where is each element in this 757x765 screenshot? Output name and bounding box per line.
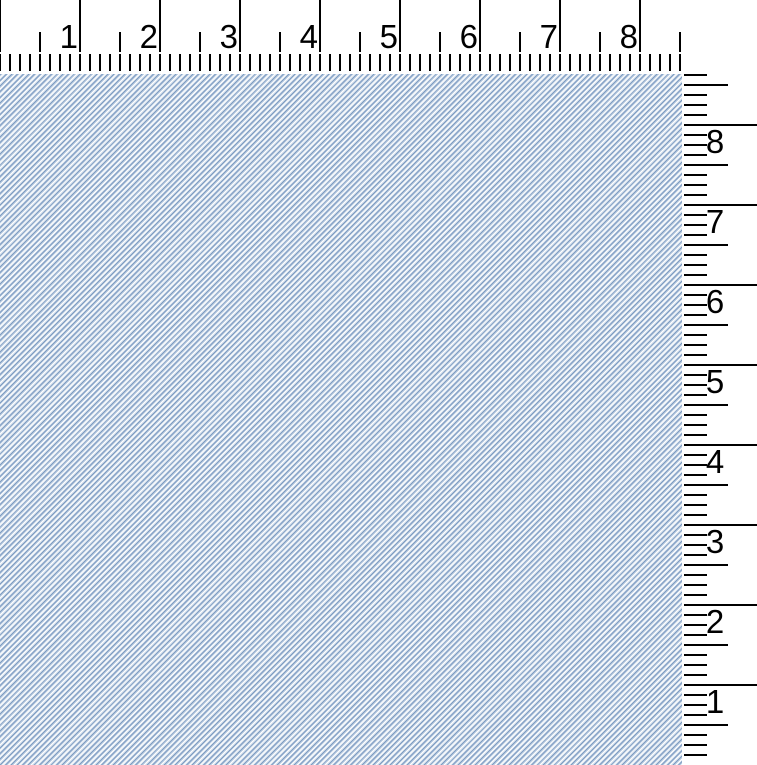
eighth-inch-tick (529, 54, 531, 71)
eighth-inch-tick (684, 94, 707, 96)
eighth-inch-tick (9, 54, 11, 71)
eighth-inch-tick (419, 54, 421, 71)
inch-tick-major (319, 0, 321, 52)
v-inch-label-4: 4 (698, 445, 732, 478)
eighth-inch-tick (684, 664, 707, 666)
half-inch-tick (684, 164, 728, 166)
ruler-measurement-screen: 12345678 87654321 (0, 0, 757, 765)
v-inch-label-8: 8 (698, 125, 732, 158)
eighth-inch-tick (599, 54, 601, 71)
eighth-inch-tick (469, 54, 471, 71)
v-inch-label-6: 6 (698, 285, 732, 318)
eighth-inch-tick (684, 344, 707, 346)
eighth-inch-tick (199, 54, 201, 71)
eighth-inch-tick (89, 54, 91, 71)
eighth-inch-tick (489, 54, 491, 71)
eighth-inch-tick (684, 184, 707, 186)
eighth-inch-tick (409, 54, 411, 71)
half-inch-tick (684, 84, 728, 86)
half-inch-tick (684, 564, 728, 566)
h-inch-label-5: 5 (355, 20, 398, 53)
eighth-inch-tick (684, 494, 707, 496)
eighth-inch-tick (684, 434, 707, 436)
eighth-inch-tick (684, 744, 707, 746)
inch-tick-major (639, 0, 641, 52)
eighth-inch-tick (439, 54, 441, 71)
eighth-inch-tick (639, 54, 641, 71)
eighth-inch-tick (684, 274, 707, 276)
eighth-inch-tick (684, 74, 707, 76)
eighth-inch-tick (684, 414, 707, 416)
inch-tick-major (479, 0, 481, 52)
h-inch-label-7: 7 (515, 20, 558, 53)
half-inch-tick (684, 644, 728, 646)
eighth-inch-tick (349, 54, 351, 71)
h-inch-label-2: 2 (115, 20, 158, 53)
eighth-inch-tick (0, 54, 1, 71)
eighth-inch-tick (684, 514, 707, 516)
eighth-inch-tick (684, 114, 707, 116)
inch-tick-major (239, 0, 241, 52)
eighth-inch-tick (299, 54, 301, 71)
eighth-inch-tick (519, 54, 521, 71)
eighth-inch-tick (449, 54, 451, 71)
eighth-inch-tick (359, 54, 361, 71)
eighth-inch-tick (684, 584, 707, 586)
v-inch-label-1: 1 (698, 685, 732, 718)
eighth-inch-tick (259, 54, 261, 71)
eighth-inch-tick (684, 594, 707, 596)
eighth-inch-tick (59, 54, 61, 71)
eighth-inch-tick (684, 654, 707, 656)
eighth-inch-tick (499, 54, 501, 71)
eighth-inch-tick (179, 54, 181, 71)
eighth-inch-tick (669, 54, 671, 71)
h-inch-label-4: 4 (275, 20, 318, 53)
eighth-inch-tick (684, 674, 707, 676)
eighth-inch-tick (229, 54, 231, 71)
eighth-inch-tick (579, 54, 581, 71)
eighth-inch-tick (209, 54, 211, 71)
eighth-inch-tick (619, 54, 621, 71)
eighth-inch-tick (429, 54, 431, 71)
eighth-inch-tick (684, 194, 707, 196)
eighth-inch-tick (279, 54, 281, 71)
half-inch-tick (684, 724, 728, 726)
v-inch-label-2: 2 (698, 605, 732, 638)
h-inch-label-1: 1 (35, 20, 78, 53)
eighth-inch-tick (539, 54, 541, 71)
eighth-inch-tick (684, 334, 707, 336)
eighth-inch-tick (149, 54, 151, 71)
h-inch-label-8: 8 (595, 20, 638, 53)
eighth-inch-tick (684, 754, 707, 756)
eighth-inch-tick (399, 54, 401, 71)
h-inch-label-3: 3 (195, 20, 238, 53)
inch-tick-major (159, 0, 161, 52)
eighth-inch-tick (39, 54, 41, 71)
eighth-inch-tick (109, 54, 111, 71)
eighth-inch-tick (189, 54, 191, 71)
eighth-inch-tick (319, 54, 321, 71)
eighth-inch-tick (649, 54, 651, 71)
eighth-inch-tick (609, 54, 611, 71)
inch-tick-major (559, 0, 561, 52)
eighth-inch-tick (379, 54, 381, 71)
half-inch-tick (679, 32, 681, 52)
eighth-inch-tick (569, 54, 571, 71)
eighth-inch-tick (684, 264, 707, 266)
eighth-inch-tick (684, 174, 707, 176)
eighth-inch-tick (679, 54, 681, 71)
half-inch-tick (684, 244, 728, 246)
eighth-inch-tick (684, 734, 707, 736)
eighth-inch-tick (19, 54, 21, 71)
v-inch-label-7: 7 (698, 205, 732, 238)
eighth-inch-tick (684, 424, 707, 426)
eighth-inch-tick (509, 54, 511, 71)
eighth-inch-tick (684, 504, 707, 506)
eighth-inch-tick (339, 54, 341, 71)
half-inch-tick (684, 324, 728, 326)
eighth-inch-tick (219, 54, 221, 71)
eighth-inch-tick (459, 54, 461, 71)
eighth-inch-tick (684, 574, 707, 576)
fabric-swatch (0, 74, 682, 765)
eighth-inch-tick (129, 54, 131, 71)
inch-tick-major (0, 0, 1, 52)
h-inch-label-6: 6 (435, 20, 478, 53)
eighth-inch-tick (99, 54, 101, 71)
eighth-inch-tick (684, 104, 707, 106)
half-inch-tick (684, 484, 728, 486)
eighth-inch-tick (659, 54, 661, 71)
eighth-inch-tick (169, 54, 171, 71)
eighth-inch-tick (309, 54, 311, 71)
eighth-inch-tick (684, 354, 707, 356)
eighth-inch-tick (249, 54, 251, 71)
horizontal-ruler: 12345678 (0, 0, 684, 72)
eighth-inch-tick (589, 54, 591, 71)
eighth-inch-tick (549, 54, 551, 71)
v-inch-label-5: 5 (698, 365, 732, 398)
eighth-inch-tick (289, 54, 291, 71)
eighth-inch-tick (49, 54, 51, 71)
eighth-inch-tick (559, 54, 561, 71)
eighth-inch-tick (79, 54, 81, 71)
eighth-inch-tick (239, 54, 241, 71)
inch-tick-major (79, 0, 81, 52)
eighth-inch-tick (369, 54, 371, 71)
eighth-inch-tick (159, 54, 161, 71)
eighth-inch-tick (684, 254, 707, 256)
eighth-inch-tick (119, 54, 121, 71)
eighth-inch-tick (139, 54, 141, 71)
eighth-inch-tick (269, 54, 271, 71)
eighth-inch-tick (329, 54, 331, 71)
v-inch-label-3: 3 (698, 525, 732, 558)
eighth-inch-tick (479, 54, 481, 71)
half-inch-tick (684, 404, 728, 406)
vertical-ruler: 87654321 (684, 72, 757, 765)
eighth-inch-tick (69, 54, 71, 71)
inch-tick-major (399, 0, 401, 52)
eighth-inch-tick (389, 54, 391, 71)
eighth-inch-tick (29, 54, 31, 71)
eighth-inch-tick (629, 54, 631, 71)
